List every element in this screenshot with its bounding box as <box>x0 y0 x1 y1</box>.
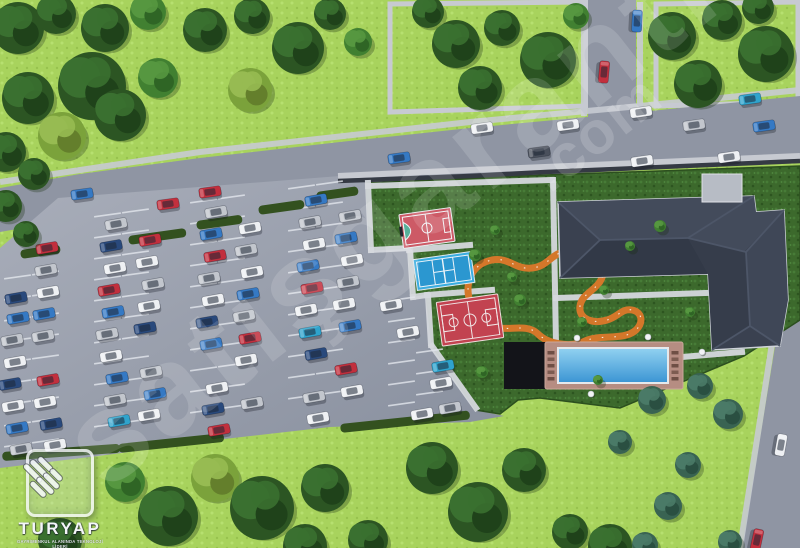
site-plan-render: satışgaranti .com TURYAP GAYRİMENKUL ALA… <box>0 0 800 548</box>
swimming-pool <box>559 349 667 382</box>
pool-lounger <box>672 364 679 368</box>
pool-table <box>574 335 580 341</box>
pool-table <box>588 391 594 397</box>
pool-table <box>645 334 651 340</box>
basketball-court <box>436 294 504 346</box>
walkway <box>410 249 413 297</box>
pool-lounger <box>548 377 555 381</box>
pool-lounger <box>672 351 679 355</box>
walkway <box>553 180 556 344</box>
pool-lounger <box>548 351 555 355</box>
pool-lounger <box>672 358 679 362</box>
futsal-court <box>397 208 455 249</box>
walkway <box>428 296 431 345</box>
pool-table <box>699 349 705 355</box>
site-aerial-svg <box>0 0 800 548</box>
shade-platform <box>504 342 546 389</box>
pool-lounger <box>672 371 679 375</box>
pool-lounger <box>548 371 555 375</box>
car <box>595 60 610 84</box>
entrance-canopy <box>702 174 742 202</box>
pool-lounger <box>548 358 555 362</box>
walkway <box>368 183 371 250</box>
road-vertical <box>588 0 636 119</box>
car <box>628 10 642 33</box>
pool-lounger <box>548 364 555 368</box>
pool-lounger <box>672 377 679 381</box>
